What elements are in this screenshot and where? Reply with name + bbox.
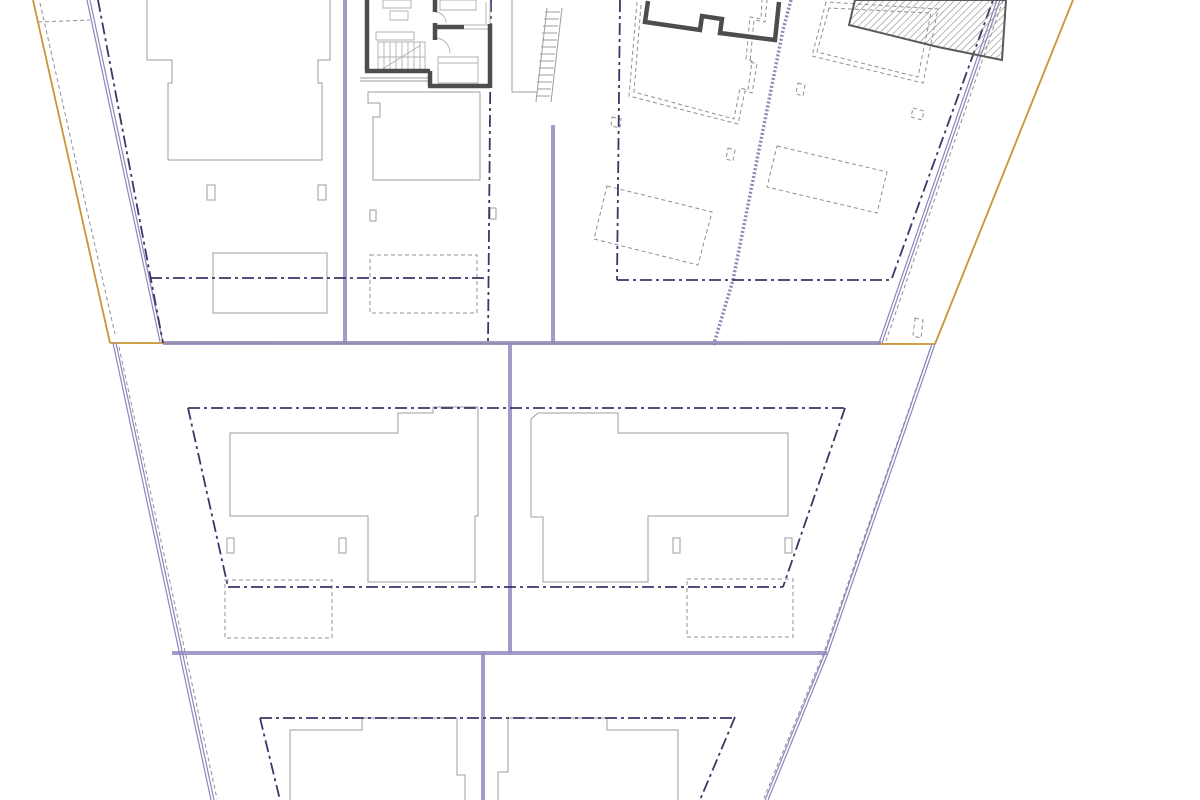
- hidden-edges-dashed-path: [913, 318, 923, 338]
- building-footprints-light-path: [490, 208, 496, 219]
- setback-lines-dashdot-path: [617, 0, 620, 280]
- floorplan-furniture-details-path: [381, 45, 421, 70]
- floorplan-furniture-details-path: [435, 12, 446, 23]
- floorplan-furniture-details-path: [376, 32, 414, 40]
- hidden-edges-dashed-path: [370, 255, 477, 313]
- hidden-edges-dashed-path: [38, 20, 90, 22]
- site-plan-svg: [0, 0, 1200, 800]
- building-footprints-light-path: [147, 0, 330, 160]
- floorplan-furniture-details-path: [435, 38, 450, 53]
- exterior-stair: [536, 8, 562, 102]
- existing-building-hatched-path: [849, 0, 1006, 60]
- building-footprints-light-path: [531, 413, 788, 582]
- building-footprints-light-path: [673, 538, 680, 553]
- hidden-edges-dashed-path: [629, 0, 767, 124]
- floorplan-furniture-details-path: [440, 0, 476, 10]
- hidden-edges-dashed-path: [119, 347, 217, 799]
- building-footprints-light-path: [368, 92, 480, 180]
- hidden-edges-dashed-path: [726, 148, 735, 161]
- setback-lines-dashdot-path: [98, 0, 163, 343]
- building-footprints-light-path: [290, 718, 465, 800]
- existing-building-hatched: [849, 0, 1006, 60]
- setback-lines-dashdot: [98, 0, 993, 800]
- hidden-edges-dashed-path: [40, 3, 115, 334]
- road-edges-thick: [163, 0, 881, 800]
- setback-lines-dashdot-path: [783, 408, 845, 587]
- building-footprints-light-path: [785, 538, 792, 553]
- exterior-stair-path: [551, 8, 562, 102]
- exterior-stair-path: [536, 8, 547, 102]
- hidden-edges-dashed-path: [796, 83, 805, 96]
- building-footprints-light-path: [512, 0, 537, 92]
- parcel-boundary-double-path: [90, 0, 163, 343]
- hidden-edges-dashed-path: [767, 146, 887, 213]
- building-footprints-light-path: [207, 185, 215, 200]
- parcel-boundary-double-path: [116, 343, 214, 800]
- parcel-boundary-double: [87, 0, 1000, 800]
- hidden-edges-dashed-path: [225, 580, 332, 638]
- building-footprints-light-path: [213, 253, 327, 313]
- building-footprints-light-path: [370, 210, 376, 221]
- setback-lines-dashdot-path: [700, 717, 735, 800]
- hidden-edges-dashed-path: [911, 108, 924, 120]
- building-footprints-light: [147, 0, 792, 800]
- building-footprints-light-path: [318, 185, 326, 200]
- building-footprints-light-path: [339, 538, 346, 553]
- building-footprints-light-path: [230, 407, 478, 582]
- floorplan-furniture-details-path: [438, 57, 478, 83]
- hidden-edges-dashed-path: [594, 186, 712, 265]
- hidden-edges-dashed-path: [764, 349, 930, 798]
- floorplan-walls-dark: [365, 0, 779, 88]
- retaining-wall-wavy-path: [713, 0, 791, 347]
- site-plan: [0, 0, 1200, 800]
- retaining-wall-wavy: [713, 0, 791, 347]
- building-footprints-light-path: [498, 718, 678, 800]
- building-footprints-light-path: [227, 538, 234, 553]
- parcel-boundary-double-path: [113, 343, 211, 800]
- floorplan-furniture-details-path: [390, 11, 408, 20]
- hidden-edges-dashed-path: [634, 0, 762, 119]
- floorplan-furniture-details-path: [383, 0, 411, 8]
- setback-lines-dashdot-path: [188, 408, 228, 587]
- setback-lines-dashdot-path: [260, 718, 280, 800]
- hidden-edges-dashed: [38, 0, 1003, 799]
- parcel-boundary-double-path: [765, 344, 932, 800]
